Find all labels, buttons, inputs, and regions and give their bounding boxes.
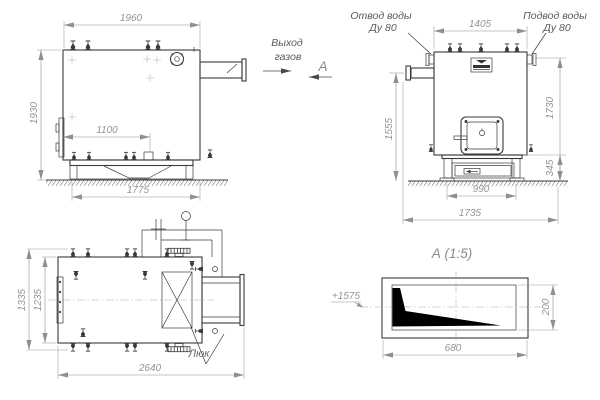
- water-inlet-flange: [527, 54, 536, 66]
- valve-icon: [190, 261, 195, 269]
- flange-nozzle-icon: [168, 344, 190, 352]
- dim-1405-text: 1405: [469, 19, 492, 30]
- dim-2640-text: 2640: [138, 363, 162, 374]
- valve-icon: [125, 343, 130, 351]
- water-labels: Отвод воды Ду 80 Подвод воды Ду 80: [350, 10, 587, 54]
- rear-ducts: [142, 212, 222, 278]
- valve-icon: [85, 41, 90, 50]
- valve-icon: [143, 271, 148, 279]
- valve-icon: [133, 343, 138, 351]
- dim-1775-text: 1775: [127, 185, 150, 196]
- valve-icon: [145, 41, 150, 50]
- flange-nozzle-icon: [168, 248, 190, 256]
- water-outlet-flange: [426, 54, 434, 66]
- valve-icon: [458, 44, 463, 52]
- blowdown-fitting: [144, 152, 153, 160]
- valve-icon: [87, 152, 92, 160]
- boiler-body-front: [63, 50, 200, 160]
- valve-icon: [133, 249, 138, 257]
- gas-outlet-annotation: Выход газов: [263, 37, 303, 71]
- dim-345-text: 345: [545, 159, 556, 176]
- front-drain-cocks: [72, 150, 213, 160]
- inlet-label-line2: Ду 80: [542, 22, 571, 34]
- technical-drawing-sheet: 1960 1930 1100 1775 Выход газов А: [0, 0, 600, 400]
- valve-icon: [70, 41, 75, 50]
- elevation-mark: +1575: [331, 291, 363, 307]
- valve-icon: [448, 44, 453, 52]
- valve-icon: [71, 249, 76, 257]
- elevation-text: +1575: [332, 291, 361, 302]
- centerline-crosses: [68, 55, 161, 121]
- inspection-flange: [171, 53, 184, 66]
- valve-icon: [71, 343, 76, 351]
- outlet-label-line1: Отвод воды: [350, 10, 412, 22]
- valve-icon: [124, 152, 129, 160]
- front-base-skid: [70, 160, 193, 179]
- valve-icon: [208, 150, 213, 158]
- gas-outlet-label-line2: газов: [275, 51, 302, 63]
- valve-icon: [505, 44, 510, 52]
- dim-1730-text: 1730: [545, 96, 556, 119]
- valve-icon: [81, 329, 86, 337]
- plan-view: 1335 1235 2640 Люк: [17, 212, 244, 380]
- outlet-label-line2: Ду 80: [368, 22, 397, 34]
- side-view: Отвод воды Ду 80 Подвод воды Ду 80 1405 …: [350, 10, 587, 224]
- valve-icon: [132, 152, 137, 160]
- section-view: А (1:5) +1575 200 680: [331, 246, 558, 359]
- inlet-label-line1: Подвод воды: [523, 10, 587, 22]
- gas-outlet-pipe: [200, 59, 246, 81]
- dim-1555-text: 1555: [384, 117, 395, 140]
- dim-1235-text: 1235: [33, 288, 44, 311]
- view-a-label: А: [317, 59, 327, 74]
- side-left-pipe: [406, 66, 434, 80]
- side-top-valves: [448, 44, 520, 52]
- front-dimensions: 1960 1930 1100 1775: [29, 13, 200, 201]
- dim-200-text: 200: [541, 298, 552, 316]
- valve-icon: [125, 249, 130, 257]
- valve-icon: [86, 343, 91, 351]
- dim-680-text: 680: [445, 343, 462, 354]
- dim-1735-text: 1735: [459, 208, 482, 219]
- dim-1930-text: 1930: [29, 101, 40, 124]
- nameplate: [471, 58, 492, 72]
- boiler-drawing: 1960 1930 1100 1775 Выход газов А: [0, 0, 600, 400]
- dim-990-text: 990: [473, 184, 490, 195]
- dim-1960-text: 1960: [120, 13, 143, 24]
- valve-icon: [529, 145, 533, 152]
- valve-icon: [515, 44, 520, 52]
- hatch-callout: Люк: [187, 327, 224, 364]
- side-base: [440, 155, 524, 181]
- stand-pipe-cap-icon: [182, 212, 191, 221]
- valve-icon: [86, 249, 91, 257]
- front-view: 1960 1930 1100 1775: [29, 13, 246, 201]
- plan-dimensions: 1335 1235 2640: [17, 249, 244, 379]
- valve-icon: [479, 44, 484, 52]
- valve-icon: [74, 271, 79, 279]
- gas-outlet-label-line1: Выход: [271, 37, 303, 49]
- dim-1100-text: 1100: [96, 125, 118, 136]
- side-dimensions: 1405 1555 1730 345 990 1735: [384, 19, 566, 224]
- plan-interior-valves: [74, 261, 218, 337]
- view-a-marker: А: [309, 59, 332, 77]
- door-latch-icon: [479, 130, 484, 135]
- hatch-label: Люк: [187, 348, 210, 360]
- front-top-valves: [70, 41, 160, 50]
- valve-icon: [429, 145, 433, 152]
- furnace-door: [454, 117, 503, 154]
- section-title: А (1:5): [431, 246, 473, 261]
- valve-icon: [166, 152, 171, 160]
- valve-icon: [155, 41, 160, 50]
- valve-icon: [72, 152, 77, 160]
- dim-1335-text: 1335: [17, 288, 28, 311]
